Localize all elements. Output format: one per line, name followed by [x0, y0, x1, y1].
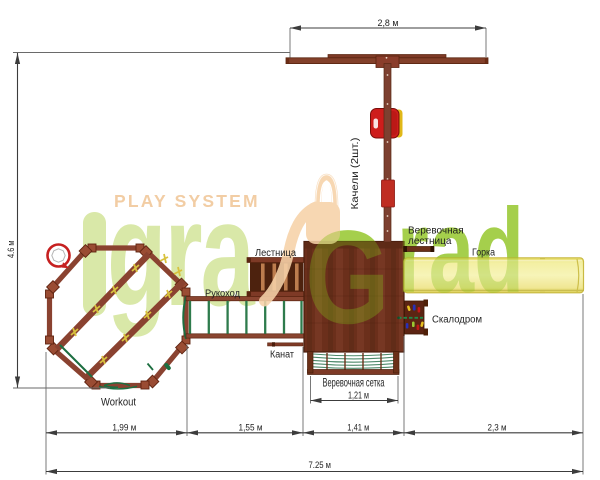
- svg-text:7.25 м: 7.25 м: [309, 460, 332, 471]
- svg-text:1,21 м: 1,21 м: [348, 389, 369, 401]
- svg-text:2,3 м: 2,3 м: [488, 422, 507, 433]
- svg-text:Скалодром: Скалодром: [432, 315, 482, 326]
- svg-text:1,41 м: 1,41 м: [347, 423, 369, 434]
- svg-text:gra: gra: [107, 169, 256, 337]
- svg-text:Workout: Workout: [101, 397, 136, 409]
- svg-text:2,8 м: 2,8 м: [378, 18, 399, 29]
- svg-text:Веревочная сетка: Веревочная сетка: [323, 376, 385, 390]
- svg-text:лестница: лестница: [408, 236, 452, 247]
- svg-text:Рукоход: Рукоход: [205, 289, 240, 300]
- svg-text:1,99 м: 1,99 м: [112, 423, 136, 434]
- svg-text:4.6 м: 4.6 м: [6, 241, 17, 259]
- svg-text:Канат: Канат: [270, 350, 294, 361]
- svg-text:Качели (2шт.): Качели (2шт.): [349, 138, 361, 210]
- svg-text:G: G: [305, 203, 390, 352]
- svg-text:Горка: Горка: [472, 248, 495, 259]
- svg-text:1,55 м: 1,55 м: [239, 423, 263, 434]
- svg-text:Лестница: Лестница: [255, 248, 296, 259]
